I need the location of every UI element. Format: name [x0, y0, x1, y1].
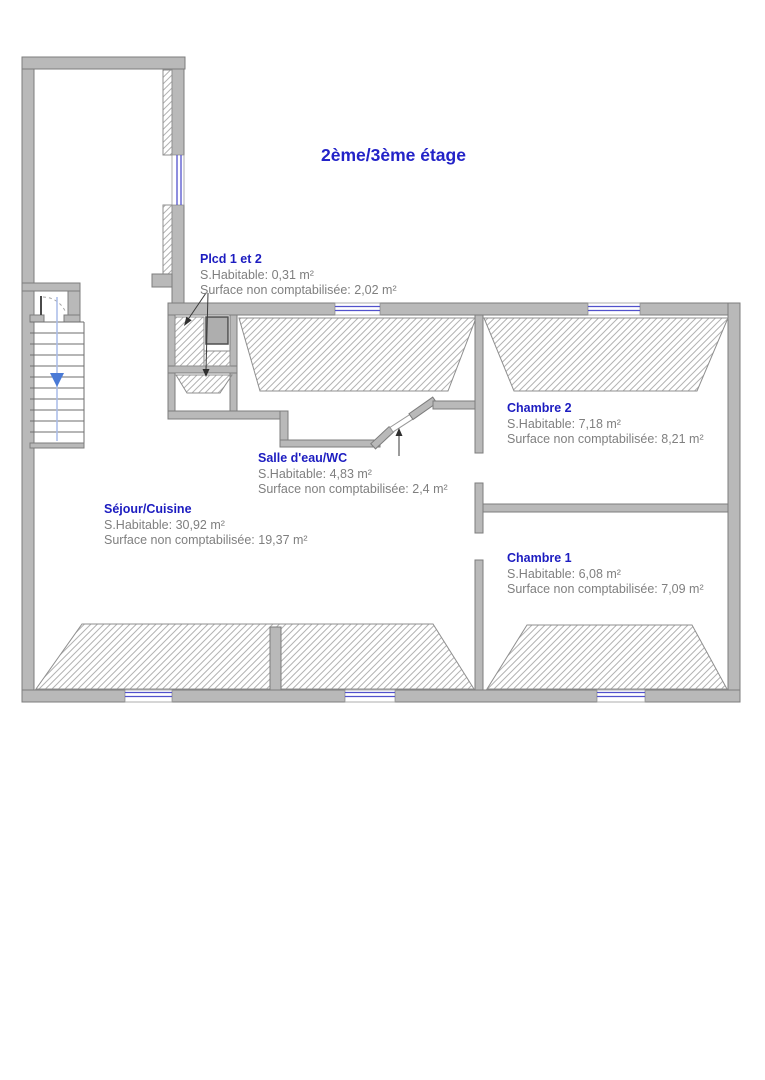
room-non-comptabilisee: Surface non comptabilisée: 2,02 m² [200, 283, 397, 299]
wall-top-1 [168, 303, 335, 315]
hatch-sejour [36, 624, 474, 689]
wall-left [22, 57, 34, 702]
wall-divider-upper [475, 315, 483, 453]
duct-block [206, 317, 228, 344]
room-label-chambre1: Chambre 1 S.Habitable: 6,08 m² Surface n… [507, 551, 704, 598]
room-habitable: S.Habitable: 4,83 m² [258, 467, 448, 483]
floorplan-page: 2ème/3ème étage Plcd 1 et 2 S.Habitable:… [0, 0, 765, 1080]
wall-divider-middle [475, 483, 483, 533]
window-symbol-sejour-1 [125, 690, 172, 702]
room-habitable: S.Habitable: 7,18 m² [507, 417, 704, 433]
hatch-projection-lower [163, 205, 172, 274]
door-swing-arc [43, 297, 66, 313]
wall-bottom-1 [22, 690, 125, 702]
window-symbol-sejour-2 [345, 690, 395, 702]
room-non-comptabilisee: Surface non comptabilisée: 8,21 m² [507, 432, 704, 448]
wall-bottom-2 [172, 690, 345, 702]
wall-top-2 [380, 303, 588, 315]
window-symbol-chambre2 [588, 303, 640, 315]
room-name: Salle d'eau/WC [258, 451, 448, 467]
wall-projection-top [22, 57, 185, 69]
hatch-plcd-1 [175, 317, 204, 366]
wall-sejour-stub [270, 627, 281, 690]
hatch-plcd-shelf [204, 351, 230, 366]
room-label-salle-deau: Salle d'eau/WC S.Habitable: 4,83 m² Surf… [258, 451, 448, 498]
room-habitable: S.Habitable: 6,08 m² [507, 567, 704, 583]
hatch-plcd-2 [176, 375, 232, 393]
salle-deau-walls [280, 397, 482, 449]
wall-projection-right-upper [172, 69, 184, 155]
room-label-chambre2: Chambre 2 S.Habitable: 7,18 m² Surface n… [507, 401, 704, 448]
wall-salle-diagonal-1 [371, 427, 394, 449]
room-label-plcd: Plcd 1 et 2 S.Habitable: 0,31 m² Surface… [200, 252, 397, 299]
floor-title: 2ème/3ème étage [321, 145, 491, 166]
wall-projection-cap [152, 274, 172, 287]
room-non-comptabilisee: Surface non comptabilisée: 7,09 m² [507, 582, 704, 598]
room-non-comptabilisee: Surface non comptabilisée: 2,4 m² [258, 482, 448, 498]
wall-landing-top [22, 283, 80, 291]
room-non-comptabilisee: Surface non comptabilisée: 19,37 m² [104, 533, 308, 549]
room-habitable: S.Habitable: 0,31 m² [200, 268, 397, 284]
hatch-chambre2 [484, 318, 728, 391]
room-name: Chambre 1 [507, 551, 704, 567]
room-name: Plcd 1 et 2 [200, 252, 397, 268]
room-name: Séjour/Cuisine [104, 502, 308, 518]
wall-plcd-partition [168, 366, 237, 373]
wall-right [728, 303, 740, 702]
wall-landing-right [68, 291, 80, 317]
window-symbol-chambre1 [597, 690, 645, 702]
hatch-salle-deau [239, 318, 476, 391]
wall-salle-bottom [280, 440, 380, 447]
wall-landing-stub-left [30, 315, 44, 322]
window-symbol-salle-deau [335, 303, 380, 315]
stair-down-arrow-icon [50, 373, 64, 387]
wall-bottom-4 [645, 690, 740, 702]
stair-bottom-edge [30, 443, 84, 448]
wall-bottom-3 [395, 690, 597, 702]
room-label-sejour: Séjour/Cuisine S.Habitable: 30,92 m² Sur… [104, 502, 308, 549]
wall-divider-lower [475, 560, 483, 690]
hatch-projection-upper [163, 70, 172, 155]
room-name: Chambre 2 [507, 401, 704, 417]
wall-between-chambres [483, 504, 728, 512]
wall-top-3 [640, 303, 740, 315]
wall-projection-right-lower [172, 205, 184, 303]
hatch-chambre1 [487, 625, 727, 689]
wall-plcd-bottom [168, 411, 288, 419]
room-habitable: S.Habitable: 30,92 m² [104, 518, 308, 534]
window-symbol-stairwell [172, 155, 184, 205]
wall-landing-stub-right [64, 315, 80, 322]
